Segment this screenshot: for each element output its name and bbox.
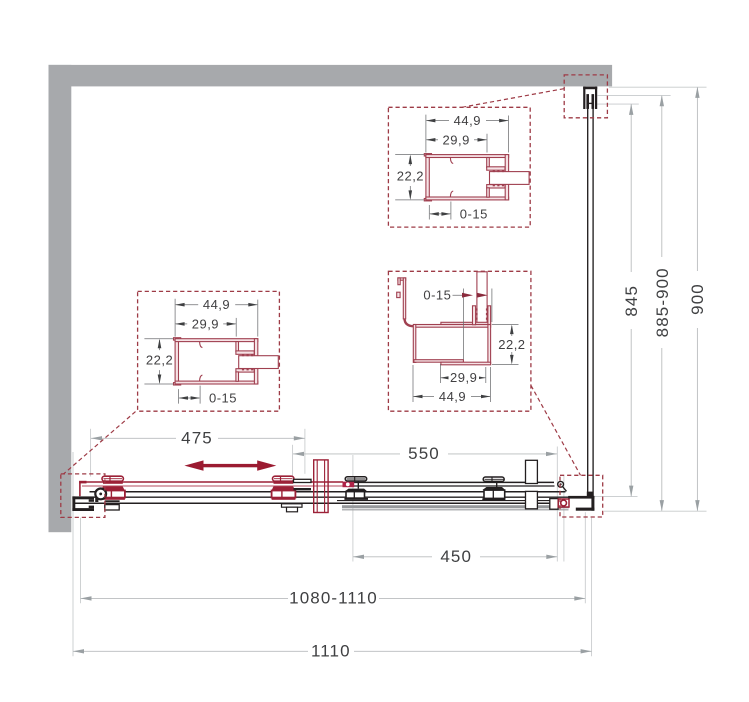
svg-text:885-900: 885-900	[653, 267, 672, 337]
svg-text:1110: 1110	[311, 641, 351, 660]
svg-text:44,9: 44,9	[439, 389, 466, 404]
svg-text:900: 900	[688, 283, 707, 315]
svg-text:1080-1110: 1080-1110	[289, 589, 378, 608]
svg-text:44,9: 44,9	[454, 113, 481, 128]
svg-text:29,9: 29,9	[443, 132, 470, 147]
svg-text:0-15: 0-15	[423, 288, 451, 303]
svg-text:845: 845	[622, 285, 641, 317]
svg-text:550: 550	[408, 444, 440, 463]
svg-text:22,2: 22,2	[498, 337, 525, 352]
svg-text:22,2: 22,2	[397, 169, 424, 184]
svg-text:0-15: 0-15	[460, 206, 488, 221]
svg-text:29,9: 29,9	[450, 370, 477, 385]
svg-text:475: 475	[181, 429, 213, 448]
svg-text:450: 450	[440, 547, 472, 566]
